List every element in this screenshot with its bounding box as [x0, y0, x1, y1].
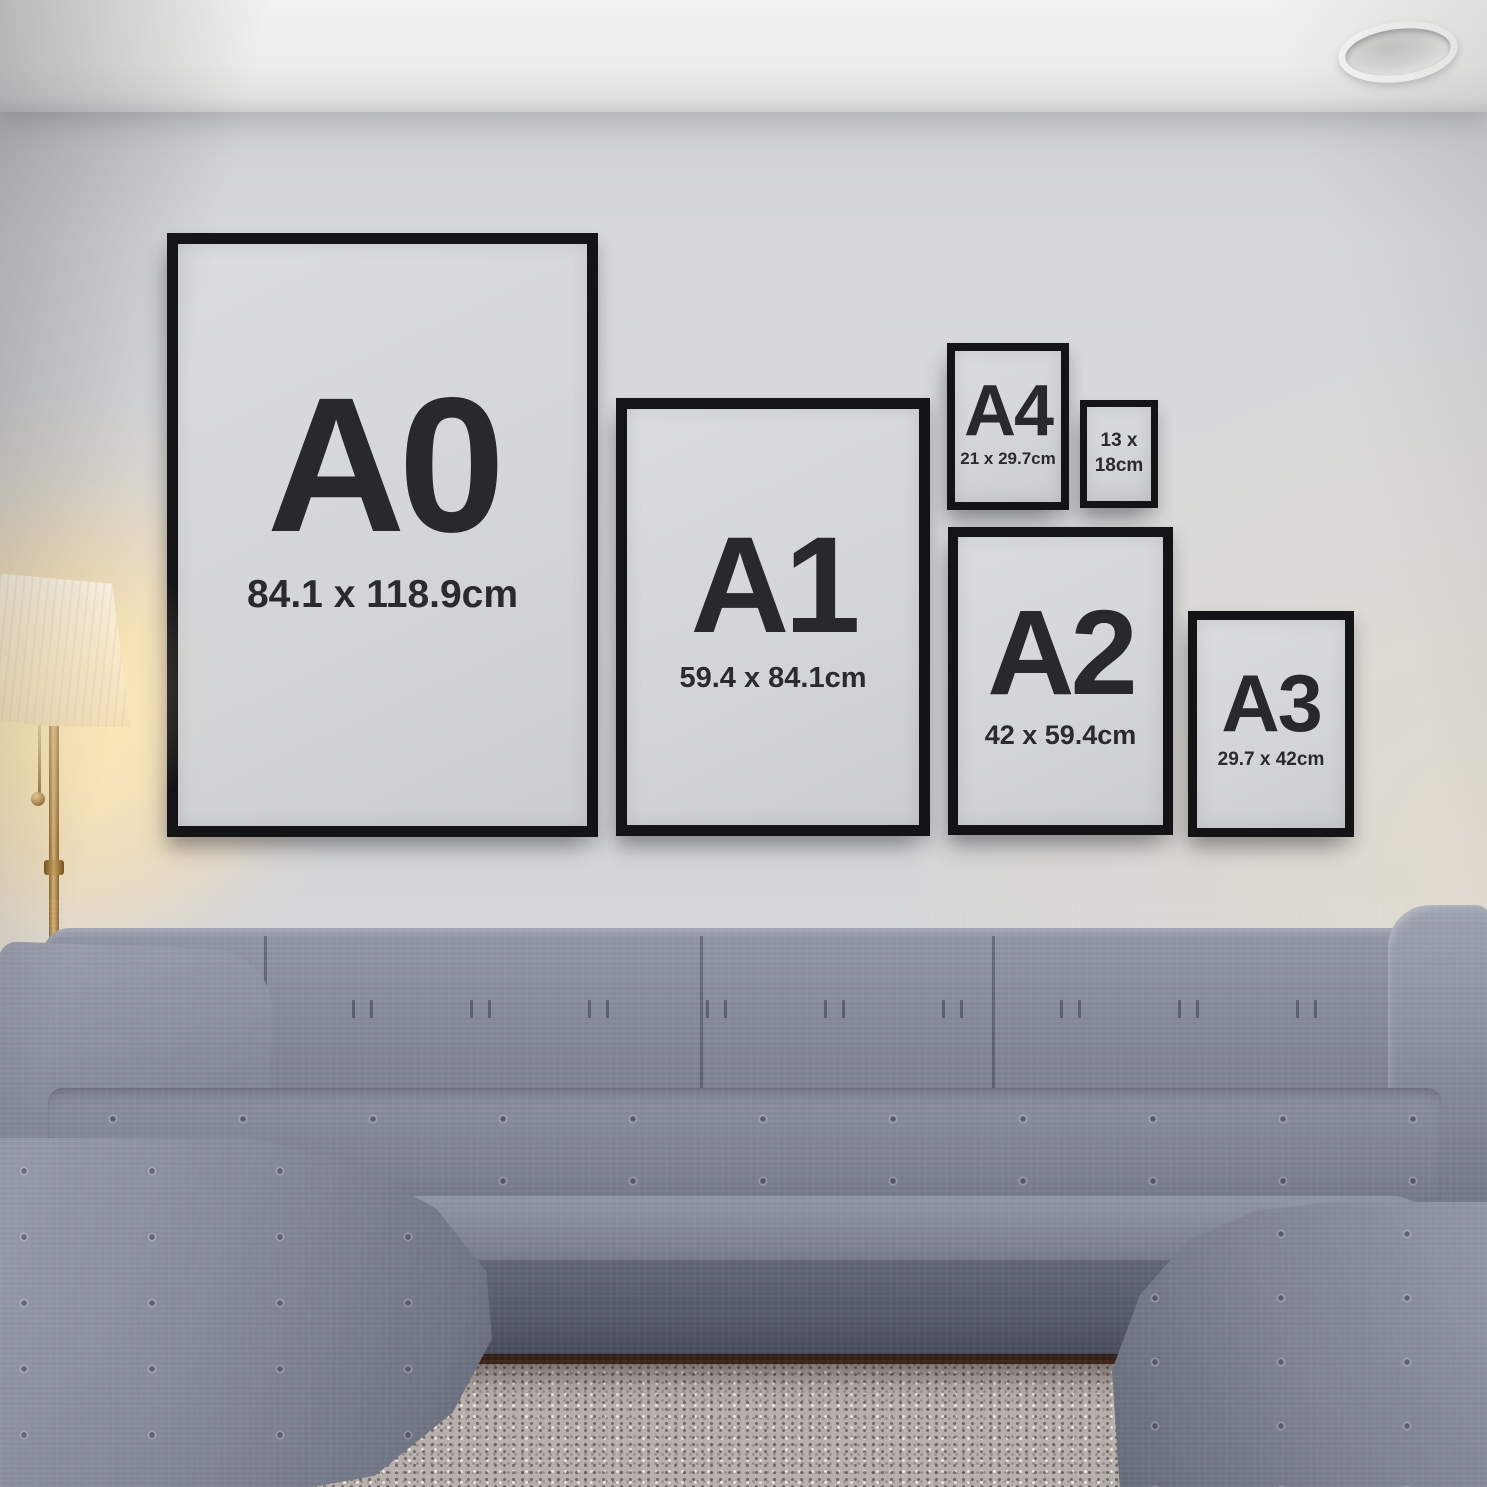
frame-a3: A3 29.7 x 42cm	[1188, 611, 1354, 837]
frame-13x18-dimensions: 13 x	[1101, 429, 1138, 454]
frame-13x18: 13 x 18cm	[1080, 400, 1158, 508]
frame-a2-dimensions: 42 x 59.4cm	[985, 719, 1137, 751]
lamp-stem	[49, 718, 59, 963]
frame-a4: A4 21 x 29.7cm	[947, 343, 1069, 510]
frame-a0-dimensions: 84.1 x 118.9cm	[247, 572, 518, 619]
frame-a4-label: A4	[964, 379, 1052, 444]
frame-a2-content: A2 42 x 59.4cm	[985, 598, 1137, 763]
living-room-scene: A0 84.1 x 118.9cm A1 59.4 x 84.1cm A4 21…	[0, 0, 1487, 1487]
frame-a3-label: A3	[1221, 668, 1321, 741]
frame-13x18-content: 13 x 18cm	[1095, 429, 1144, 478]
lamp-collar	[44, 860, 64, 875]
frame-a1: A1 59.4 x 84.1cm	[616, 398, 930, 836]
frame-a1-content: A1 59.4 x 84.1cm	[679, 524, 866, 710]
frame-a4-content: A4 21 x 29.7cm	[960, 379, 1055, 474]
frame-a1-label: A1	[690, 524, 855, 647]
lamp-pull-chain-ball	[31, 792, 45, 806]
frame-a1-dimensions: 59.4 x 84.1cm	[679, 661, 866, 696]
ceiling	[0, 0, 1487, 112]
shag-rug	[230, 1364, 1260, 1487]
frame-a2: A2 42 x 59.4cm	[948, 527, 1173, 835]
frame-a0: A0 84.1 x 118.9cm	[167, 233, 598, 837]
frame-a2-label: A2	[987, 598, 1134, 707]
frame-13x18-dimensions-line2: 18cm	[1095, 454, 1144, 479]
frame-a4-dimensions: 21 x 29.7cm	[960, 449, 1055, 469]
lamp-pull-chain	[38, 722, 41, 796]
frame-a3-content: A3 29.7 x 42cm	[1218, 668, 1325, 780]
frame-a3-dimensions: 29.7 x 42cm	[1218, 749, 1325, 772]
frame-a0-content: A0 84.1 x 118.9cm	[247, 379, 518, 639]
frame-a0-label: A0	[267, 379, 498, 552]
